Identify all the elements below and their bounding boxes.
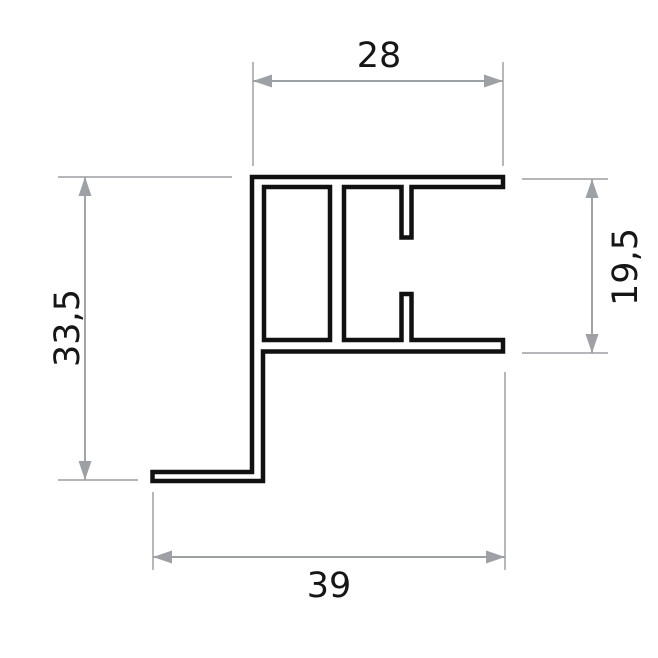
profile-drawing: 2819,533,539 — [0, 0, 658, 658]
arrowhead-right-icon — [486, 551, 505, 564]
arrowhead-down-icon — [586, 334, 599, 353]
profile-inner-chamber — [264, 187, 330, 340]
arrowhead-left-icon — [153, 551, 172, 564]
arrowhead-down-icon — [79, 461, 92, 480]
arrowhead-left-icon — [253, 75, 272, 88]
arrowhead-right-icon — [484, 75, 503, 88]
dimension-height-left: 33,5 — [48, 177, 232, 480]
dimension-height-right: 19,5 — [522, 179, 646, 353]
drawing-canvas: 2819,533,539 — [0, 0, 658, 658]
dimension-label-width-top: 28 — [357, 36, 402, 76]
dimension-width-top: 28 — [253, 36, 503, 166]
dimension-annotations: 2819,533,539 — [48, 36, 646, 606]
dimension-width-bottom: 39 — [153, 372, 505, 606]
dimension-label-height-left: 33,5 — [48, 289, 88, 367]
arrowhead-up-icon — [79, 177, 92, 196]
dimension-label-height-right: 19,5 — [606, 228, 646, 306]
dimension-label-width-bottom: 39 — [307, 566, 352, 606]
arrowhead-up-icon — [586, 179, 599, 198]
profile-outline — [153, 177, 504, 481]
